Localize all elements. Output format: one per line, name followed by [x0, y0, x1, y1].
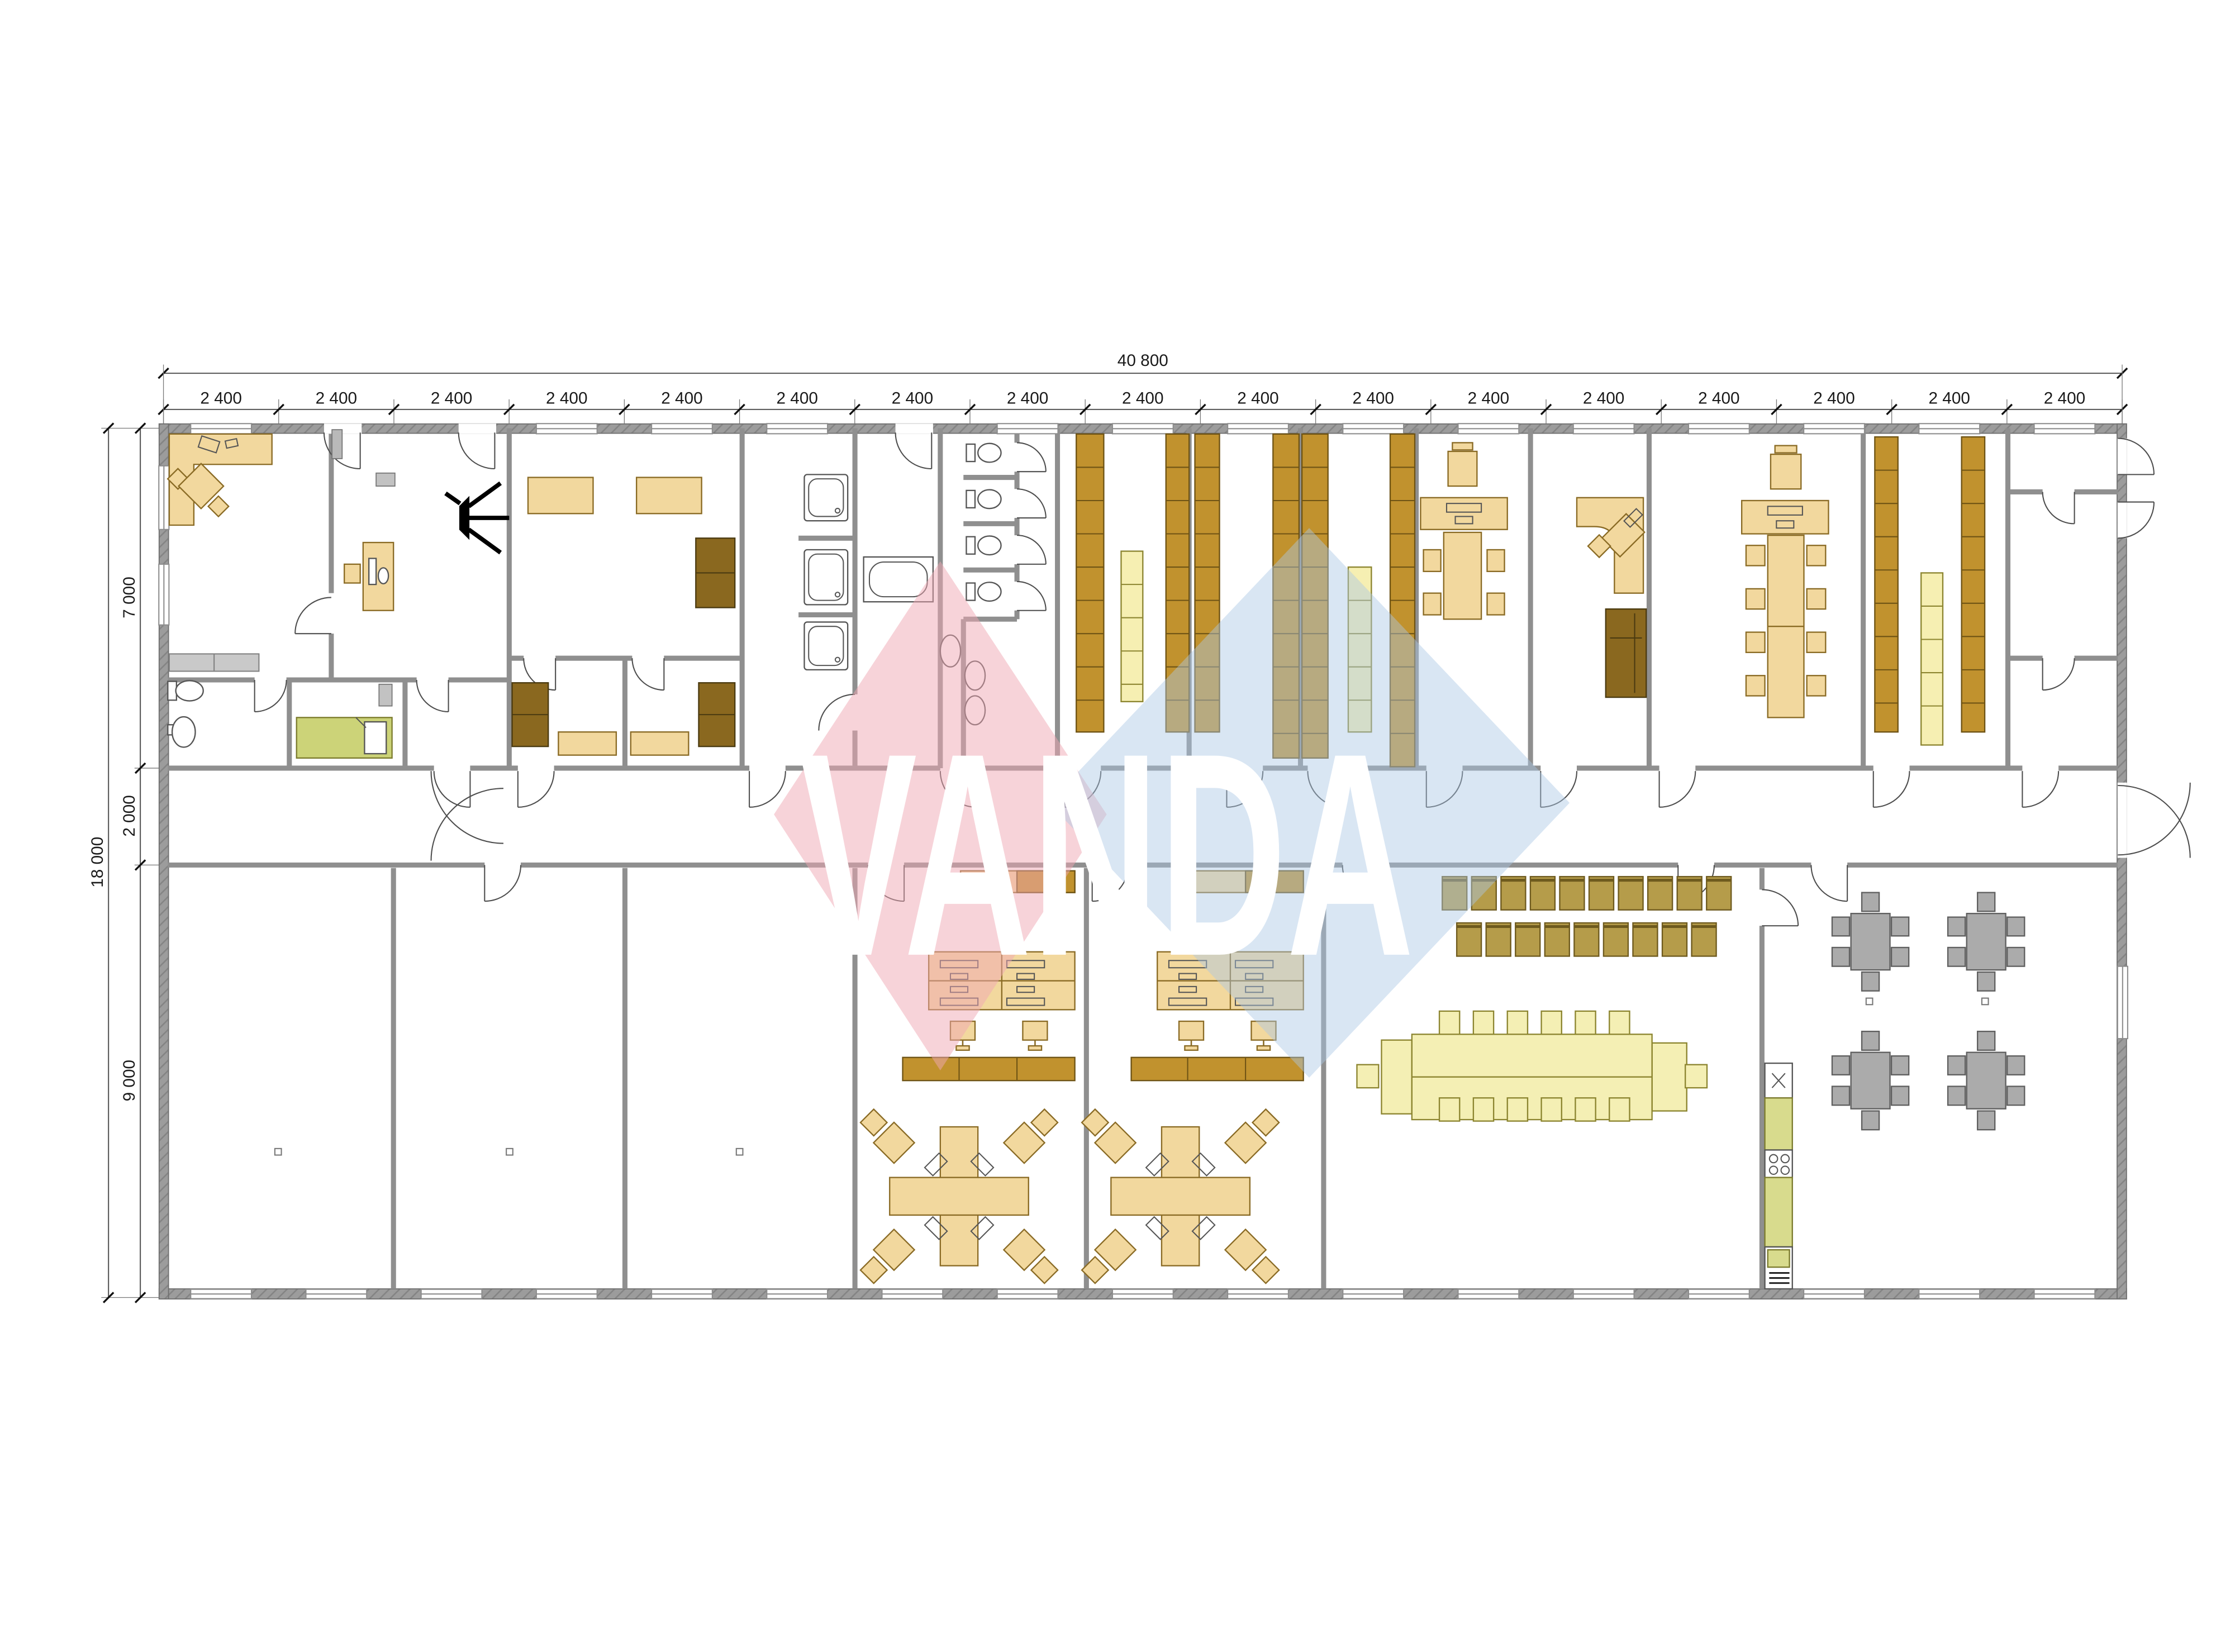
staff-wc-fixtures: [168, 654, 259, 747]
door-swing: [434, 771, 470, 807]
segment-dimension-label: 2 400: [1237, 389, 1279, 408]
stacking-chair: [1457, 923, 1481, 956]
stacking-chair: [1633, 923, 1657, 956]
dining-set: [1832, 893, 1909, 991]
stacking-chair: [1589, 877, 1614, 910]
shelf-rack: [1121, 551, 1143, 702]
door-swing: [255, 680, 287, 712]
dining-set: [1948, 1031, 2024, 1130]
segment-dimension-label: 2 400: [316, 389, 358, 408]
desk-island: [860, 1109, 1058, 1283]
stacking-chair: [1501, 877, 1525, 910]
segment-dimension-label: 2 400: [892, 389, 934, 408]
segment-dimension-label: 2 400: [661, 389, 703, 408]
office-chair: [1424, 593, 1441, 615]
door-swing: [1811, 865, 1847, 901]
stacking-chair: [1574, 923, 1599, 956]
total-width-dimension: 40 800: [1117, 351, 1168, 370]
door-opening: [324, 423, 362, 434]
boardroom-chair: [1575, 1011, 1595, 1034]
ceiling-lamp-icon: [445, 483, 509, 553]
door-opening: [2118, 502, 2127, 539]
kitchen-strip: [1765, 1063, 1792, 1289]
watermark-text: VANDA: [799, 693, 1414, 1016]
segment-dimension-label: 2 400: [200, 389, 242, 408]
lobby-workstation: [332, 430, 395, 611]
meeting-chair: [1746, 545, 1765, 565]
door-swing: [431, 788, 503, 860]
door-opening: [2118, 439, 2127, 475]
door-swing: [1762, 889, 1798, 926]
meeting-chair: [1807, 675, 1826, 696]
boardroom-chair: [1542, 1098, 1562, 1121]
left-dimension-total: 18 000: [88, 837, 107, 888]
shower-cabins: [804, 474, 848, 670]
left-dimension-9000: 9 000: [120, 1060, 139, 1102]
segment-dimension-label: 2 400: [1468, 389, 1509, 408]
dining-set: [1832, 1031, 1909, 1130]
rest-room-bed: [297, 684, 392, 758]
door-swing: [1017, 489, 1046, 518]
boardroom-chair: [1575, 1098, 1595, 1121]
toilet: [966, 490, 1001, 509]
shelf-rack: [1875, 437, 1898, 732]
shelf-rack: [1962, 437, 1985, 732]
door-swing: [749, 771, 786, 807]
stacking-chair: [1619, 877, 1643, 910]
reception-desk: [168, 434, 272, 525]
left-dimension-2000: 2 000: [120, 795, 139, 837]
boardroom-chair: [1609, 1098, 1629, 1121]
door-swing: [1873, 771, 1910, 807]
segment-dimension-label: 2 400: [1583, 389, 1625, 408]
door-opening: [896, 423, 933, 434]
meeting-chair: [1807, 545, 1826, 565]
door-swing: [632, 658, 664, 690]
meeting-chair: [1746, 675, 1765, 696]
boardroom-chair: [1473, 1011, 1494, 1034]
boardroom-chair: [1473, 1098, 1494, 1121]
door-swing: [484, 865, 521, 901]
door-swing: [2043, 658, 2075, 690]
segment-dimension-label: 2 400: [431, 389, 473, 408]
top-dimension-lines: 40 800 2 4002 4002 4002 4002 4002 4002 4…: [158, 351, 2127, 428]
toilet: [966, 444, 1001, 463]
stacking-chair: [1530, 877, 1555, 910]
door-swing: [1659, 771, 1696, 807]
door-swing: [1017, 582, 1046, 611]
segment-dimension-label: 2 400: [1352, 389, 1394, 408]
boardroom-chair: [1609, 1011, 1629, 1034]
door-swing: [2022, 771, 2058, 807]
toilet: [966, 582, 1001, 601]
segment-dimension-label: 2 400: [546, 389, 588, 408]
boardroom-chair: [1542, 1011, 1562, 1034]
office-chair: [1424, 550, 1441, 572]
boardroom-chair: [1508, 1011, 1528, 1034]
door-swing: [1017, 535, 1046, 564]
floor-mark: [506, 1149, 513, 1155]
floor-mark: [1982, 998, 1989, 1005]
office-chair: [1487, 593, 1504, 615]
stacking-chair: [1677, 877, 1702, 910]
door-opening: [459, 423, 496, 434]
meeting-chair: [1807, 589, 1826, 609]
segment-dimension-label: 2 400: [1813, 389, 1855, 408]
shelf-rack: [1076, 434, 1104, 732]
floor-mark: [275, 1149, 282, 1155]
left-dimension-7000: 7 000: [120, 577, 139, 618]
boardroom-chair: [1439, 1098, 1459, 1121]
stacking-chair: [1706, 877, 1731, 910]
segment-dimension-label: 2 400: [1007, 389, 1049, 408]
segment-dimension-label: 2 400: [1122, 389, 1164, 408]
stacking-chair: [1604, 923, 1628, 956]
stacking-chair: [1648, 877, 1672, 910]
door-swing: [518, 771, 554, 807]
door-swing: [417, 680, 449, 712]
boardroom-table: [1357, 1034, 1707, 1120]
stacking-chair: [1486, 923, 1511, 956]
segment-dimension-label: 2 400: [2044, 389, 2086, 408]
meeting-chair: [1746, 632, 1765, 653]
boardroom-chair: [1439, 1011, 1459, 1034]
stacking-chair: [1559, 877, 1584, 910]
stacking-chair: [1692, 923, 1716, 956]
dining-set: [1948, 893, 2024, 991]
floor-mark: [1866, 998, 1873, 1005]
manager-office-furniture: [1577, 498, 1646, 697]
shelf-rack: [1921, 573, 1943, 745]
door-opening: [2118, 783, 2127, 858]
floor-mark: [736, 1149, 743, 1155]
left-dimension-lines: 7 000 2 000 9 000 18 000: [88, 423, 164, 1302]
door-swing: [896, 432, 932, 469]
door-swing: [1017, 442, 1046, 472]
stacking-chair: [1515, 923, 1540, 956]
stacking-chair: [1545, 923, 1570, 956]
door-swing: [295, 597, 331, 634]
door-swing: [459, 432, 495, 469]
floor-plan-canvas: 40 800 2 4002 4002 4002 4002 4002 4002 4…: [0, 0, 2235, 1652]
boardroom-chair: [1508, 1098, 1528, 1121]
door-swing: [2043, 492, 2075, 523]
segment-dimension-label: 2 400: [776, 389, 818, 408]
stacking-chair: [1662, 923, 1687, 956]
toilet: [966, 536, 1001, 555]
meeting-chair: [1746, 589, 1765, 609]
office-chair: [1487, 550, 1504, 572]
segment-dimension-label: 2 400: [1698, 389, 1740, 408]
segment-dimension-label: 2 400: [1928, 389, 1970, 408]
meeting-chair: [1807, 632, 1826, 653]
desk-island: [1082, 1109, 1279, 1283]
